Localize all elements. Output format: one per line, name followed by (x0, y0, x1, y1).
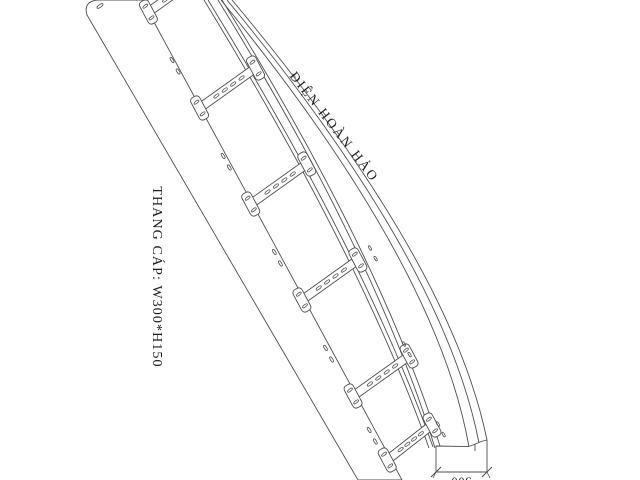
drawing-canvas: ĐIỆN HOÀN HẢO THANG CÁP: W300*H150 300 (0, 0, 640, 480)
width-dimension-text: 300 (451, 474, 472, 480)
spec-label: THANG CÁP: W300*H150 (148, 186, 164, 367)
cable-ladder-drawing (0, 0, 640, 480)
